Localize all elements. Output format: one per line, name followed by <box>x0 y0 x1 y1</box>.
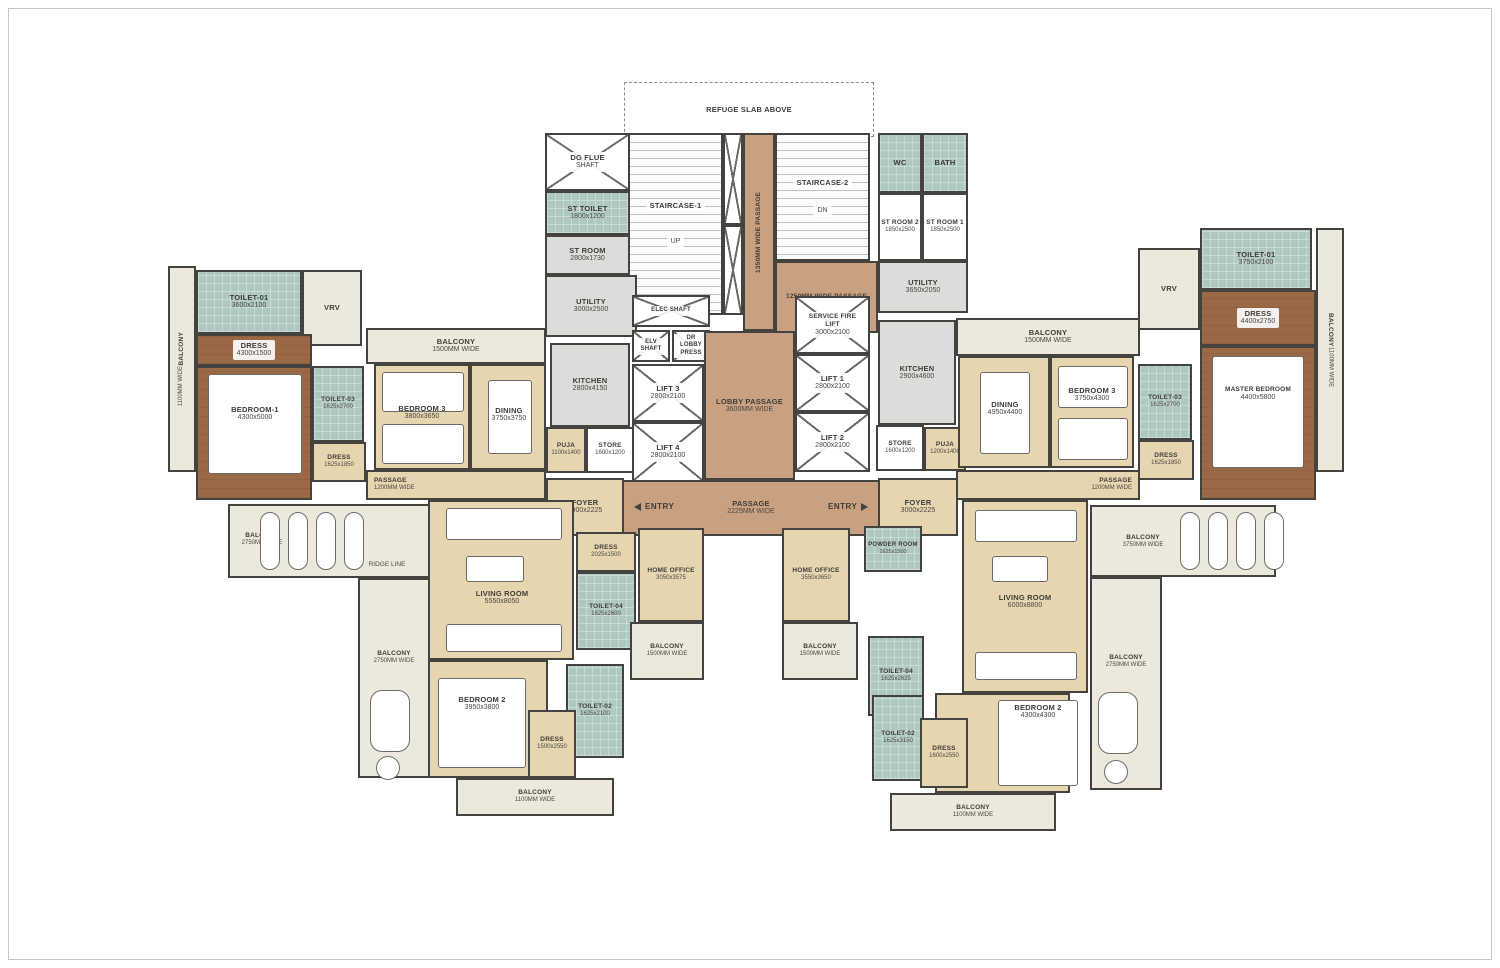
lounger-a <box>288 512 308 570</box>
room-label: ST ROOM 2 <box>881 219 919 227</box>
room-label: KITCHEN <box>573 376 608 385</box>
room-label: TOILET-02 <box>881 730 915 738</box>
room-lift-3: LIFT 32800x2100 <box>632 364 704 422</box>
room-label: BALCONY <box>437 337 475 346</box>
room-label: HOME OFFICE <box>792 567 839 575</box>
room-toilet-01-b: TOILET-013750x2100 <box>1200 228 1312 290</box>
sofa-top-a <box>446 508 562 540</box>
room-label: BALCONY <box>1029 328 1067 337</box>
room-toilet-03-b: TOILET-031625x2700 <box>1138 364 1192 440</box>
bed-master-b <box>1212 356 1304 468</box>
room-label: BATH <box>934 158 955 167</box>
planter-b <box>1098 692 1138 754</box>
plumbing-shaft <box>723 133 743 225</box>
room-label: KITCHEN <box>900 364 935 373</box>
room-dress-b: DRESS1625x1850 <box>1138 440 1194 480</box>
room-label-bedroom1-a: BEDROOM-14300x5000 <box>208 404 302 424</box>
coffee-table-a <box>466 556 524 582</box>
room-label: TOILET-02 <box>578 703 612 711</box>
room-label: PASSAGE <box>1099 477 1132 485</box>
room-label: BALCONY <box>803 643 837 651</box>
room-label: WC <box>894 158 907 167</box>
room-store-right: STORE1600x1200 <box>876 425 924 471</box>
room-kitchen-right: KITCHEN2900x4600 <box>878 320 956 425</box>
room-label: DRESS <box>594 544 617 552</box>
room-label-master-b: MASTER BEDROOM4400x5800 <box>1212 384 1304 404</box>
room-label: SERVICE FIRE LIFT <box>801 313 864 329</box>
room-label-bedroom2-a: BEDROOM 23950x3800 <box>438 694 526 714</box>
room-staircase-1: STAIRCASE-1 UP <box>628 133 723 315</box>
room-label: TOILET-03 <box>1148 394 1182 402</box>
balcony-top-b: BALCONY1500MM WIDE <box>956 318 1140 356</box>
balcony-left-side: BALCONY 1100MM WIDE <box>168 266 196 472</box>
room-label: LIFT 2 <box>821 433 844 442</box>
room-label: DRESS <box>1245 309 1272 318</box>
room-home-office-b: HOME OFFICE3550x3650 <box>782 528 850 622</box>
room-label: 1350MM WIDE PASSAGE <box>755 192 763 273</box>
room-label: HOME OFFICE <box>647 567 694 575</box>
room-label: ST ROOM <box>569 246 605 255</box>
room-st-toilet: ST TOILET1800x1200 <box>545 191 630 235</box>
room-label: TOILET-01 <box>230 293 269 302</box>
floor-plan: REFUGE SLAB ABOVE STAIRCASE-1 UP 1350MM … <box>0 0 1500 968</box>
lounger-a <box>316 512 336 570</box>
room-store-left: STORE1600x1200 <box>586 427 634 473</box>
sofa-bottom-a <box>446 624 562 652</box>
room-label: LIFT 3 <box>656 384 679 393</box>
room-label: BALCONY <box>650 643 684 651</box>
room-home-office-a: HOME OFFICE3050x3575 <box>638 528 704 622</box>
room-vrv-b: VRV <box>1138 248 1200 330</box>
lounger-b <box>1208 512 1228 570</box>
room-label: UTILITY <box>576 297 606 306</box>
room-label-dining-a: DINING3750x3750 <box>478 406 540 424</box>
refuge-slab-label: REFUGE SLAB ABOVE <box>706 105 792 114</box>
room-toilet-04-a: TOILET-041625x2600 <box>576 572 636 650</box>
refuge-slab-outline: REFUGE SLAB ABOVE <box>624 82 874 137</box>
stair-up-label: UP <box>671 238 681 246</box>
room-passage-b: PASSAGE1200MM WIDE <box>956 470 1140 500</box>
balcony-2750-right <box>1090 577 1162 790</box>
room-label: UTILITY <box>908 278 938 287</box>
room-dress-2-a: DRESS1500x2550 <box>528 710 576 778</box>
entry-arrow-left-icon <box>634 503 641 511</box>
room-label-bedroom3-b: BEDROOM 33750x4300 <box>1052 386 1132 404</box>
room-label: PASSAGE <box>374 477 407 485</box>
stair-dn-label: DN <box>817 207 827 215</box>
room-label: DRESS <box>327 454 350 462</box>
room-label: BALCONY <box>956 804 990 812</box>
room-label: FOYER <box>572 498 599 507</box>
room-label-living-a: LIVING ROOM5550x8050 <box>448 588 556 608</box>
bed-bedroom2-a <box>438 678 526 768</box>
lounger-b <box>1236 512 1256 570</box>
room-label-bedroom2-b: BEDROOM 24300x4300 <box>994 702 1082 722</box>
room-dress-a: DRESS1625x1850 <box>312 442 366 482</box>
room-lobby-passage: LOBBY PASSAGE3600MM WIDE <box>704 331 795 480</box>
room-dress-master-b: DRESS4400x2750 <box>1200 290 1316 346</box>
room-label: ST ROOM 1 <box>926 219 964 227</box>
room-bath: BATH <box>922 133 968 193</box>
room-dg-flue-shaft: DG FLUESHAFT <box>545 133 630 191</box>
room-label: VRV <box>324 303 340 312</box>
planter-b <box>1104 760 1128 784</box>
bed-bedroom1-a <box>208 374 302 474</box>
room-label: FOYER <box>905 498 932 507</box>
room-label: DR LOBBY PRESS <box>678 335 704 358</box>
sofa-bottom-b <box>975 652 1077 680</box>
lounger-a <box>344 512 364 570</box>
room-label: DRESS <box>241 341 268 350</box>
room-dress-2-b: DRESS1600x2550 <box>920 718 968 788</box>
bed-single-2-a <box>382 424 464 464</box>
room-powder-b: POWDER ROOM1625x1500 <box>864 526 922 572</box>
room-st-room-2: ST ROOM 21850x2500 <box>878 193 922 261</box>
room-dress-ho-a: DRESS2025x1500 <box>576 532 636 572</box>
room-elec-shaft: ELEC SHAFT <box>632 295 710 327</box>
room-label: DRESS <box>1154 452 1177 460</box>
room-label: STORE <box>888 440 911 448</box>
room-service-fire-lift: SERVICE FIRE LIFT3000x2100 <box>795 296 870 354</box>
room-label: DG FLUE <box>570 153 604 162</box>
room-label: STORE <box>598 442 621 450</box>
room-utility-left: UTILITY3000x2500 <box>545 275 637 337</box>
room-label: PASSAGE <box>732 499 770 508</box>
room-label: STAIRCASE-1 <box>650 201 702 210</box>
bed-single-2-b <box>1058 418 1128 460</box>
room-toilet-02-b: TOILET-021625x3150 <box>872 695 924 781</box>
room-lift-1: LIFT 12800x2100 <box>795 354 870 412</box>
room-label: TOILET-04 <box>589 603 623 611</box>
room-label: LIFT 4 <box>656 443 679 452</box>
room-label: BALCONY <box>1326 313 1334 347</box>
balcony-top-a: BALCONY1500MM WIDE <box>366 328 546 364</box>
entry-right: ENTRY <box>828 502 868 511</box>
balcony-right-side: BALCONY 1100MM WIDE <box>1316 228 1344 472</box>
room-label: LIFT 1 <box>821 374 844 383</box>
passage-1350: 1350MM WIDE PASSAGE <box>743 133 775 331</box>
room-label: TOILET-01 <box>1237 250 1276 259</box>
planter-a <box>370 690 410 752</box>
room-label: PUJA <box>557 442 575 450</box>
balcony-office-a: BALCONY1500MM WIDE <box>630 622 704 680</box>
room-label: DRESS <box>540 736 563 744</box>
room-label: LOBBY PASSAGE <box>716 397 783 406</box>
lounger-b <box>1180 512 1200 570</box>
fhc-shaft <box>723 225 743 315</box>
planter-a <box>376 756 400 780</box>
entry-label: ENTRY <box>828 502 857 511</box>
room-label-dining-b: DINING4950x4400 <box>974 400 1036 418</box>
room-label: PUJA <box>936 441 954 449</box>
room-kitchen-left: KITCHEN2800x4150 <box>550 343 630 427</box>
balcony-bottom-a: BALCONY1100MM WIDE <box>456 778 614 816</box>
room-label: TOILET-03 <box>321 396 355 404</box>
room-label-living-b: LIVING ROOM6000x8800 <box>972 592 1078 612</box>
room-staircase-2: STAIRCASE-2 DN <box>775 133 870 261</box>
room-label: BALCONY <box>178 332 186 366</box>
room-passage-a: PASSAGE1200MM WIDE <box>366 470 546 500</box>
room-utility-right: UTILITY3650x2050 <box>878 261 968 313</box>
balcony-bottom-b: BALCONY1100MM WIDE <box>890 793 1056 831</box>
room-puja-left: PUJA1100x1400 <box>546 427 586 473</box>
entry-arrow-right-icon <box>861 503 868 511</box>
room-st-room-1: ST ROOM 11850x2500 <box>922 193 968 261</box>
room-label: ST TOILET <box>568 204 608 213</box>
room-toilet-03-a: TOILET-031625x2700 <box>312 366 364 442</box>
balcony-office-b: BALCONY1500MM WIDE <box>782 622 858 680</box>
room-label: ELEC SHAFT <box>651 307 691 315</box>
room-st-room-left: ST ROOM2800x1730 <box>545 235 630 275</box>
lounger-b <box>1264 512 1284 570</box>
room-label: ELV SHAFT <box>638 339 664 354</box>
balcony-3750-label: BALCONY3750MM WIDE <box>1112 532 1174 552</box>
room-lift-2: LIFT 22800x2100 <box>795 412 870 472</box>
entry-left: ENTRY <box>634 502 674 511</box>
room-elv-shaft: ELV SHAFT <box>632 330 670 362</box>
room-label: BALCONY <box>518 789 552 797</box>
room-label: VRV <box>1161 284 1177 293</box>
room-lift-4: LIFT 42800x2100 <box>632 422 704 482</box>
balcony-2750-right-label: BALCONY2750MM WIDE <box>1092 652 1160 672</box>
room-toilet-01-a: TOILET-013600x2100 <box>196 270 302 334</box>
entry-label: ENTRY <box>645 502 674 511</box>
room-wc: WC <box>878 133 922 193</box>
room-label: DRESS <box>932 745 955 753</box>
sofa-top-b <box>975 510 1077 542</box>
room-label: STAIRCASE-2 <box>797 178 849 187</box>
room-dress-bedroom1-a: DRESS4300x1500 <box>196 334 312 366</box>
room-label-bedroom3-a: BEDROOM 33800x3650 <box>378 404 466 422</box>
lounger-a <box>260 512 280 570</box>
balcony-2750-b-label: BALCONY2750MM WIDE <box>360 648 428 668</box>
coffee-table-b <box>992 556 1048 582</box>
room-label: POWDER ROOM <box>868 542 918 550</box>
room-label: TOILET-04 <box>879 668 913 676</box>
